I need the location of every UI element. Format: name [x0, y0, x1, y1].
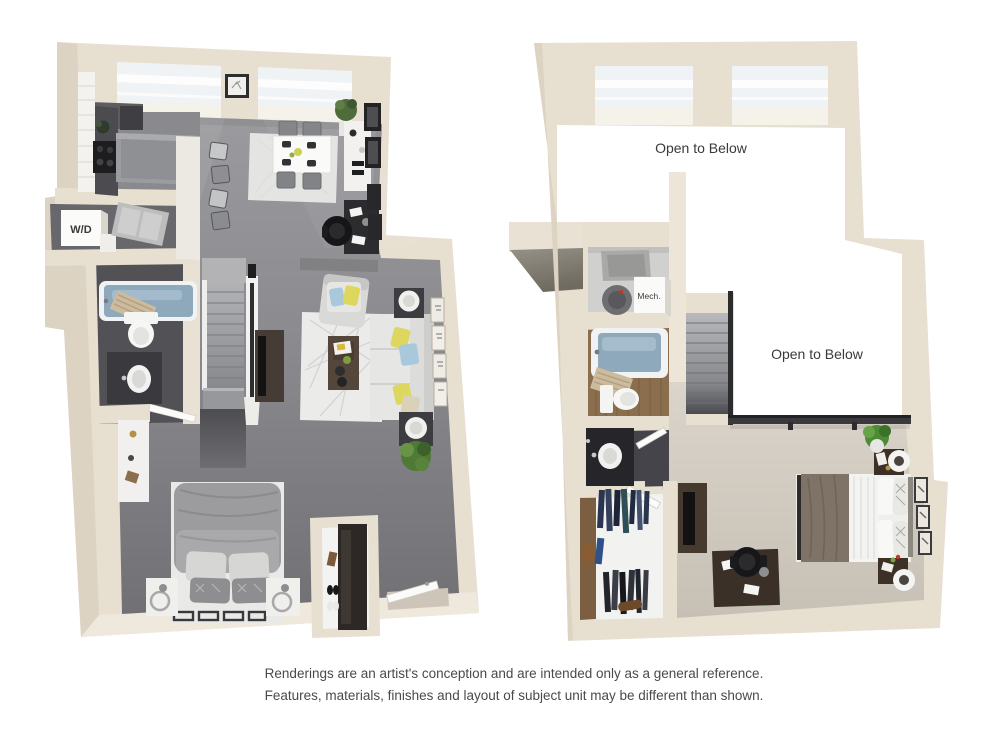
svg-text:Mech.: Mech. — [637, 291, 660, 301]
svg-text:Features, materials, finishes: Features, materials, finishes and layout… — [265, 688, 764, 703]
svg-text:Open to Below: Open to Below — [771, 346, 864, 362]
svg-text:Renderings are an artist's con: Renderings are an artist's conception an… — [265, 666, 764, 681]
svg-text:Open to Below: Open to Below — [655, 140, 748, 156]
svg-text:W/D: W/D — [70, 224, 91, 236]
